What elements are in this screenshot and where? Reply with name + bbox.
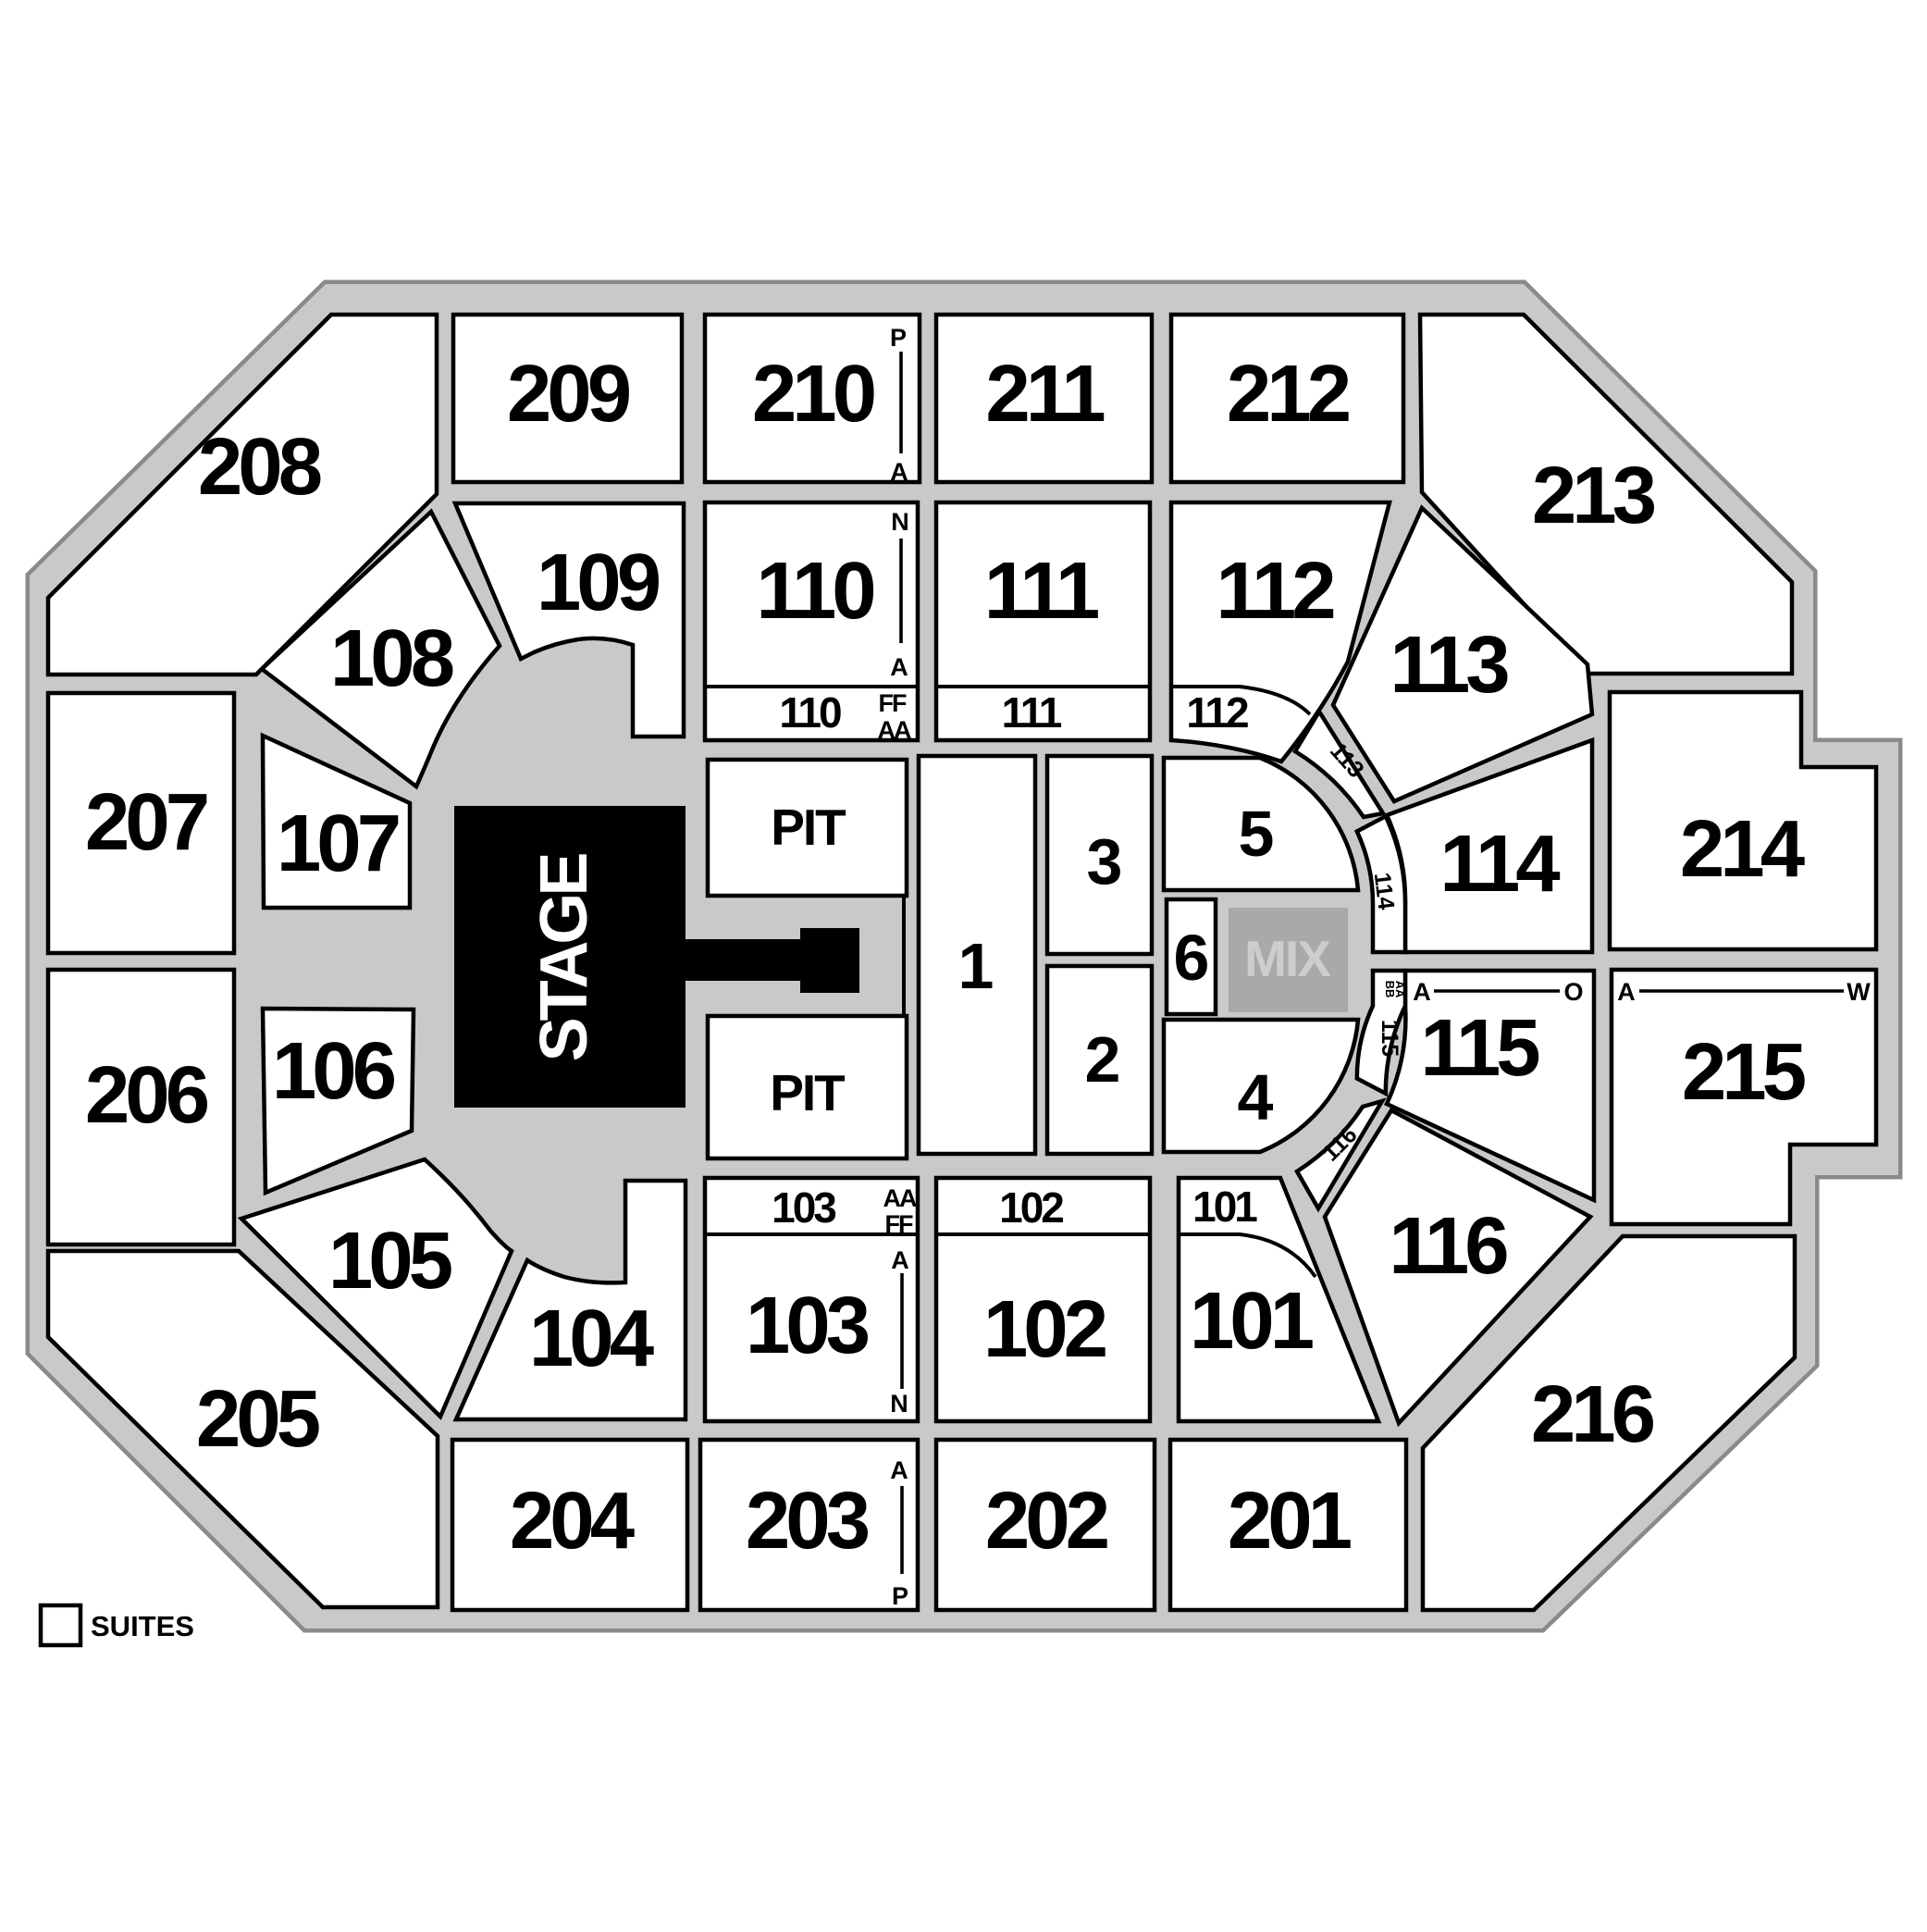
svg-text:A: A [890, 1456, 908, 1484]
svg-text:103: 103 [746, 1281, 869, 1370]
svg-text:208: 208 [198, 422, 321, 512]
svg-text:5: 5 [1239, 798, 1275, 870]
svg-text:207: 207 [85, 777, 207, 867]
svg-text:212: 212 [1227, 349, 1349, 439]
svg-text:101: 101 [1192, 1183, 1257, 1231]
svg-text:P: P [892, 1582, 908, 1610]
svg-text:104: 104 [529, 1294, 654, 1383]
svg-text:211: 211 [985, 349, 1104, 439]
svg-text:P: P [890, 324, 907, 352]
svg-text:214: 214 [1680, 804, 1805, 894]
svg-text:111: 111 [1002, 688, 1062, 737]
svg-text:110: 110 [779, 688, 841, 737]
svg-text:115: 115 [1377, 1020, 1402, 1057]
svg-text:W: W [1847, 978, 1871, 1006]
svg-text:6: 6 [1174, 922, 1210, 994]
svg-text:215: 215 [1682, 1027, 1805, 1117]
svg-text:STAGE: STAGE [527, 854, 601, 1062]
svg-text:102: 102 [999, 1183, 1063, 1232]
svg-text:113: 113 [1390, 620, 1508, 710]
svg-text:FF: FF [885, 1210, 913, 1238]
svg-text:210: 210 [752, 349, 874, 439]
svg-text:1: 1 [958, 930, 994, 1002]
svg-text:106: 106 [272, 1026, 395, 1116]
svg-text:A: A [890, 653, 908, 681]
svg-text:AA: AA [1393, 981, 1407, 998]
svg-text:102: 102 [983, 1284, 1106, 1374]
svg-text:4: 4 [1238, 1061, 1274, 1133]
svg-text:N: N [891, 508, 909, 536]
svg-text:A: A [1617, 978, 1636, 1006]
svg-text:202: 202 [985, 1476, 1107, 1566]
svg-text:PIT: PIT [770, 1064, 845, 1121]
svg-text:209: 209 [507, 349, 630, 439]
svg-text:110: 110 [756, 546, 873, 636]
svg-text:103: 103 [772, 1183, 835, 1232]
svg-text:AA: AA [878, 716, 911, 744]
svg-text:N: N [890, 1390, 908, 1418]
svg-text:116: 116 [1389, 1201, 1507, 1291]
svg-text:203: 203 [746, 1476, 869, 1566]
svg-text:A: A [1413, 978, 1431, 1006]
svg-text:PIT: PIT [771, 799, 846, 856]
svg-text:201: 201 [1228, 1476, 1351, 1566]
svg-text:204: 204 [510, 1476, 635, 1566]
svg-text:216: 216 [1531, 1369, 1654, 1459]
svg-text:112: 112 [1216, 546, 1333, 636]
svg-text:A: A [891, 1246, 909, 1274]
svg-text:101: 101 [1190, 1276, 1313, 1366]
svg-text:A: A [890, 458, 908, 486]
svg-text:MIX: MIX [1244, 930, 1331, 987]
svg-text:114: 114 [1439, 819, 1560, 909]
svg-text:109: 109 [537, 538, 660, 627]
svg-text:SUITES: SUITES [91, 1610, 194, 1642]
svg-text:108: 108 [330, 613, 453, 703]
svg-text:114: 114 [1369, 871, 1400, 911]
svg-text:115: 115 [1420, 1003, 1538, 1093]
svg-text:2: 2 [1085, 1023, 1121, 1096]
svg-text:205: 205 [196, 1374, 319, 1464]
svg-text:105: 105 [328, 1216, 451, 1306]
svg-text:FF: FF [879, 689, 907, 717]
svg-text:206: 206 [85, 1050, 208, 1140]
svg-text:107: 107 [277, 799, 399, 888]
svg-text:3: 3 [1087, 825, 1123, 898]
svg-text:213: 213 [1532, 451, 1655, 540]
svg-text:O: O [1563, 978, 1583, 1006]
svg-text:112: 112 [1186, 688, 1248, 737]
svg-text:111: 111 [984, 546, 1098, 636]
svg-text:AA: AA [883, 1184, 917, 1212]
